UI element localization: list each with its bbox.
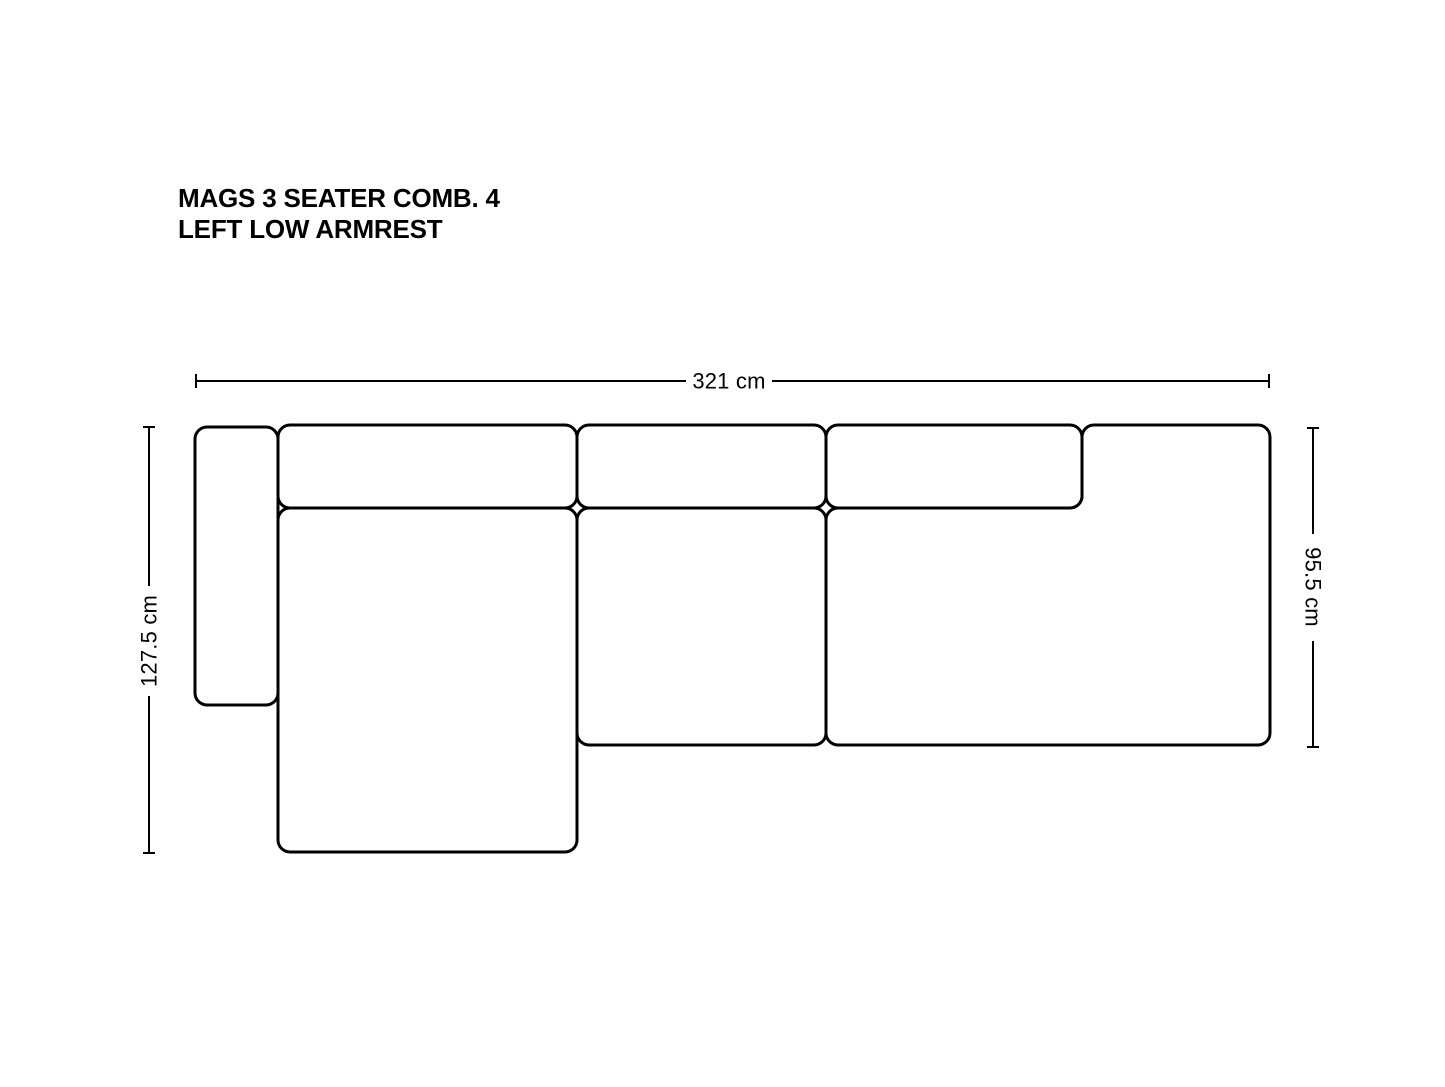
product-dimension-sheet: MAGS 3 SEATER COMB. 4 LEFT LOW ARMREST 3… [0, 0, 1445, 1087]
middle-seat-cushion-shape [577, 508, 826, 745]
width-dimension: 321 cm [196, 369, 1269, 394]
sofa-top-view-diagram: 321 cm 127.5 cm 95.5 cm [0, 0, 1445, 1087]
left-low-armrest-shape [195, 427, 278, 705]
left-depth-label: 127.5 cm [137, 595, 162, 687]
sofa-outline-group [195, 425, 1270, 852]
right-depth-label: 95.5 cm [1301, 547, 1326, 627]
middle-backrest-cushion-shape [577, 425, 826, 508]
width-dimension-label: 321 cm [692, 369, 765, 394]
chaise-longue-seat-shape [278, 508, 577, 852]
right-depth-dimension: 95.5 cm [1301, 428, 1326, 747]
left-depth-dimension: 127.5 cm [137, 427, 162, 853]
chaise-backrest-cushion-shape [278, 425, 577, 508]
right-backrest-cushion-shape [826, 425, 1082, 508]
